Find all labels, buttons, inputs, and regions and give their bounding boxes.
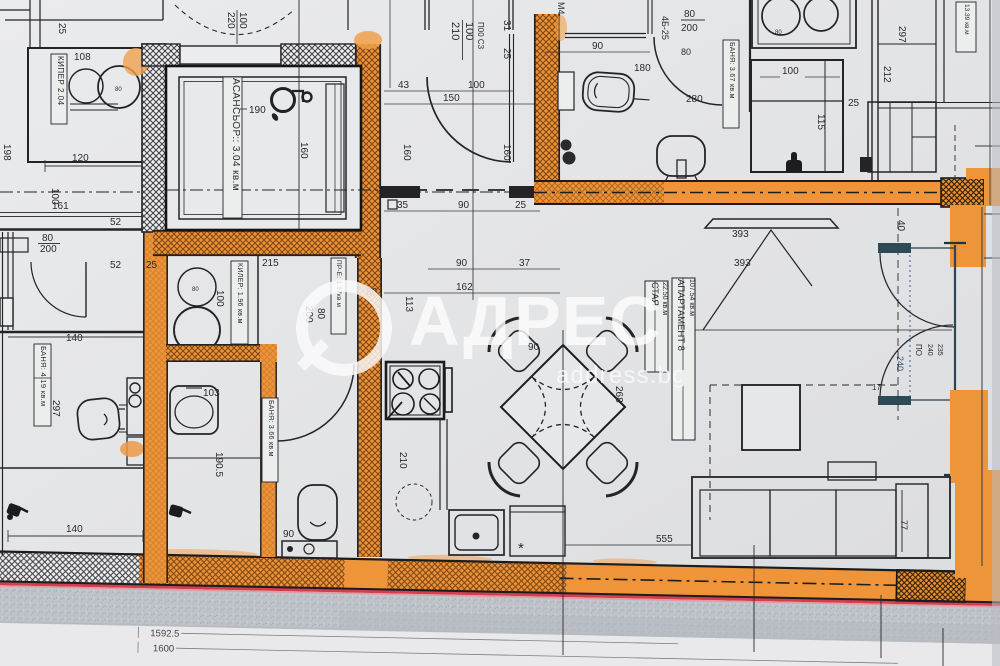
svg-text:25: 25 [146, 260, 158, 271]
svg-text:280: 280 [686, 94, 703, 105]
svg-text:198: 198 [1, 144, 12, 161]
svg-text:17: 17 [872, 383, 881, 392]
svg-text:240: 240 [926, 344, 933, 356]
svg-text:100: 100 [237, 12, 248, 29]
svg-text:АПАРТАМЕНТ 8: АПАРТАМЕНТ 8 [675, 279, 686, 351]
svg-text:25: 25 [501, 48, 512, 60]
svg-text:235: 235 [936, 344, 943, 356]
svg-text:25: 25 [515, 200, 527, 211]
svg-text:140: 140 [66, 524, 83, 535]
svg-text:100: 100 [214, 290, 225, 307]
svg-text:393: 393 [734, 258, 751, 269]
svg-text:220: 220 [225, 12, 236, 29]
svg-text:52: 52 [110, 217, 122, 228]
svg-text:80: 80 [192, 287, 199, 293]
svg-text:25: 25 [56, 23, 67, 35]
svg-text:240: 240 [895, 356, 905, 371]
svg-text:52: 52 [110, 260, 122, 271]
svg-text:555: 555 [656, 534, 673, 545]
svg-text:П00 С3: П00 С3 [476, 22, 485, 50]
svg-text:*: * [518, 540, 524, 557]
svg-text:25: 25 [848, 98, 860, 109]
svg-text:161: 161 [52, 201, 69, 212]
svg-text:80: 80 [681, 47, 691, 57]
svg-text:180: 180 [634, 63, 651, 74]
svg-text:215: 215 [262, 258, 279, 269]
svg-text:80: 80 [315, 308, 326, 320]
svg-text:190: 190 [249, 105, 266, 116]
svg-text:77: 77 [899, 520, 909, 530]
svg-text:90: 90 [283, 529, 295, 540]
svg-text:103: 103 [203, 388, 220, 399]
svg-text:297: 297 [50, 400, 61, 417]
svg-text:ПО: ПО [914, 344, 923, 356]
svg-text:80: 80 [115, 87, 122, 93]
svg-text:90: 90 [592, 41, 604, 52]
svg-text:КИПЕР 2.04: КИПЕР 2.04 [56, 56, 65, 106]
svg-text:297: 297 [896, 26, 907, 43]
svg-text:80: 80 [42, 233, 54, 244]
svg-text:АДРЕС: АДРЕС [409, 282, 661, 360]
svg-text:80: 80 [775, 30, 782, 36]
svg-text:210: 210 [449, 22, 461, 40]
svg-text:160: 160 [501, 144, 512, 161]
svg-text:КИЛЕР: 1.96 кв.м: КИЛЕР: 1.96 кв.м [236, 263, 243, 324]
svg-text:100: 100 [468, 80, 485, 91]
svg-text:190.5: 190.5 [213, 452, 224, 477]
svg-text:120: 120 [72, 153, 89, 164]
svg-text:22.50 кв.м: 22.50 кв.м [661, 282, 668, 315]
svg-text:210: 210 [397, 452, 408, 469]
svg-text:160: 160 [298, 142, 309, 159]
svg-text:31: 31 [501, 20, 512, 32]
svg-text:200: 200 [40, 244, 57, 255]
svg-text:108: 108 [74, 52, 91, 63]
svg-text:1600: 1600 [153, 643, 174, 654]
svg-text:1592.5: 1592.5 [150, 628, 179, 640]
svg-text:140: 140 [66, 333, 83, 344]
svg-text:БАНЯ: 3.67 кв.м: БАНЯ: 3.67 кв.м [728, 42, 735, 99]
svg-text:115: 115 [815, 114, 826, 130]
svg-text:107.54 кв.м: 107.54 кв.м [688, 279, 695, 316]
svg-text:100: 100 [782, 66, 799, 77]
svg-text:90: 90 [456, 258, 468, 269]
svg-text:35: 35 [397, 200, 409, 211]
svg-text:200: 200 [681, 23, 698, 34]
svg-text:address.bg: address.bg [556, 362, 687, 389]
svg-text:БАНЯ: 3.66 кв.м: БАНЯ: 3.66 кв.м [267, 400, 274, 457]
svg-text:АСАНСЬОР:: 3.04 кв.м: АСАНСЬОР:: 3.04 кв.м [230, 78, 241, 191]
svg-text:М4: М4 [556, 2, 566, 15]
svg-text:150: 150 [443, 93, 460, 104]
svg-text:40: 40 [895, 220, 906, 232]
svg-text:80: 80 [684, 9, 696, 20]
svg-text:43: 43 [398, 80, 410, 91]
svg-text:393: 393 [732, 229, 749, 240]
svg-text:БАНЯ: 4.19 кв.м: БАНЯ: 4.19 кв.м [39, 346, 48, 406]
svg-text:13.39 кв.м: 13.39 кв.м [963, 4, 970, 35]
svg-text:212: 212 [881, 66, 892, 83]
svg-text:160: 160 [401, 144, 412, 161]
svg-text:90: 90 [458, 200, 470, 211]
svg-text:37: 37 [519, 258, 531, 269]
svg-text:4Б-25: 4Б-25 [660, 16, 670, 40]
